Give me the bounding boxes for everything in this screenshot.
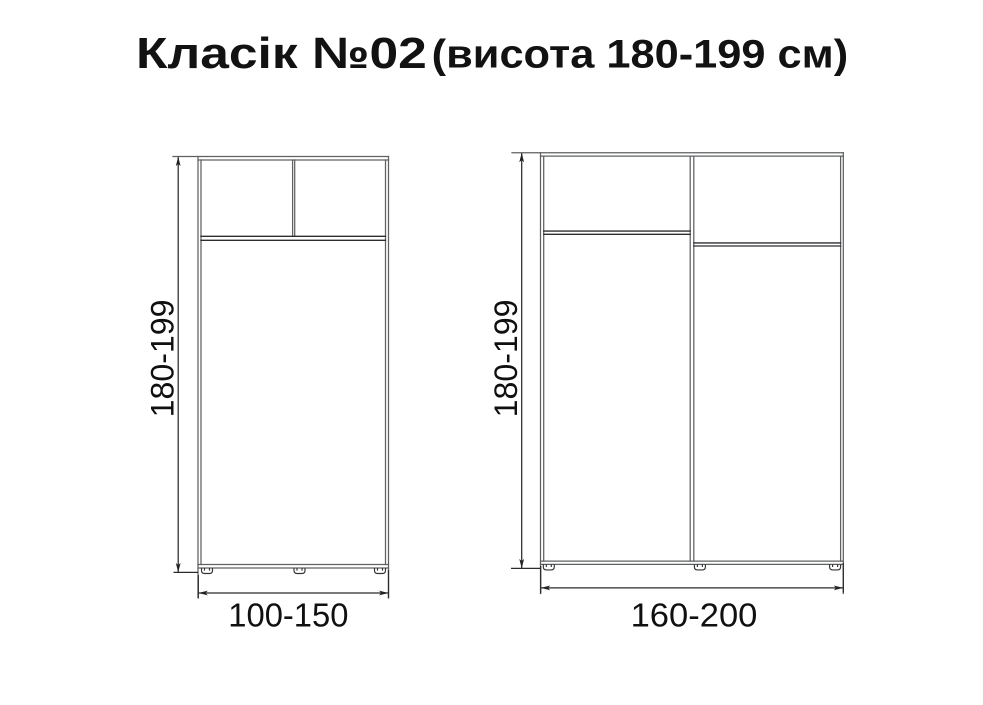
svg-text:180-199: 180-199 <box>488 300 524 418</box>
svg-text:Класік №02: Класік №02 <box>136 29 427 78</box>
svg-text:100-150: 100-150 <box>228 596 348 633</box>
svg-text:160-200: 160-200 <box>631 596 758 633</box>
svg-text:(висота 180-199 см): (висота 180-199 см) <box>432 33 849 77</box>
svg-text:180-199: 180-199 <box>144 300 180 418</box>
